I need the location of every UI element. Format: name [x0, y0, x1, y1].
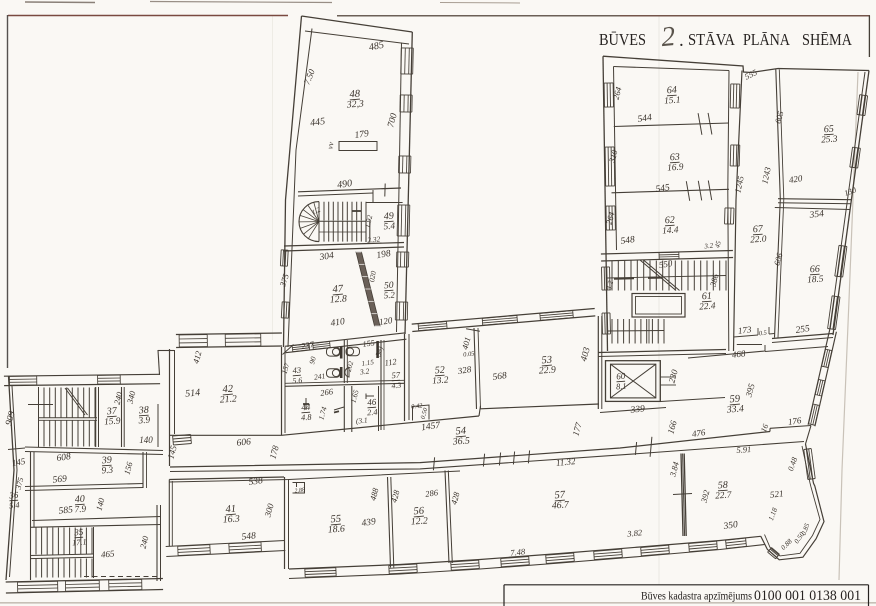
svg-text:5.2: 5.2	[383, 290, 395, 301]
svg-text:548: 548	[620, 235, 636, 247]
svg-text:514: 514	[185, 387, 201, 400]
svg-text:255: 255	[795, 324, 811, 336]
svg-text:.: .	[679, 30, 684, 51]
svg-text:112: 112	[384, 356, 398, 368]
svg-text:18.6: 18.6	[327, 523, 345, 535]
svg-text:420: 420	[788, 173, 803, 185]
svg-text:8.1: 8.1	[616, 382, 627, 392]
svg-text:64: 64	[666, 85, 677, 97]
svg-text:3.2: 3.2	[703, 242, 714, 251]
svg-text:43: 43	[292, 365, 301, 376]
svg-text:606: 606	[236, 437, 251, 448]
svg-text:15.9: 15.9	[104, 416, 121, 427]
svg-text:STĀVA: STĀVA	[688, 30, 735, 49]
svg-text:0.5: 0.5	[758, 330, 768, 338]
svg-text:44: 44	[301, 402, 311, 413]
svg-text:569: 569	[52, 474, 67, 485]
svg-text:3.2: 3.2	[358, 366, 370, 376]
svg-text:544: 544	[637, 113, 653, 125]
svg-text:476: 476	[691, 427, 706, 439]
svg-text:25.3: 25.3	[821, 134, 838, 145]
svg-text:22.0: 22.0	[750, 234, 767, 245]
svg-text:468: 468	[731, 348, 746, 360]
svg-text:35: 35	[73, 527, 84, 538]
svg-text:38: 38	[137, 405, 149, 417]
svg-text:BŪVES: BŪVES	[599, 30, 646, 49]
svg-text:2.32: 2.32	[367, 234, 381, 244]
svg-text:14.4: 14.4	[662, 225, 679, 236]
svg-text:13.2: 13.2	[432, 375, 449, 386]
svg-text:49: 49	[383, 211, 394, 223]
svg-text:46: 46	[367, 397, 377, 408]
svg-text:140: 140	[139, 435, 153, 445]
svg-text:568: 568	[492, 371, 508, 383]
svg-text:22.7: 22.7	[715, 490, 732, 501]
svg-text:37: 37	[105, 406, 118, 418]
svg-text:7.9: 7.9	[74, 505, 87, 516]
svg-text:445: 445	[309, 116, 325, 129]
svg-text:5.91: 5.91	[736, 444, 752, 455]
svg-text:3.9: 3.9	[137, 416, 151, 427]
svg-text:36: 36	[8, 490, 19, 501]
svg-text:12.2: 12.2	[410, 515, 428, 527]
svg-text:60: 60	[616, 371, 626, 382]
svg-text:46.7: 46.7	[551, 499, 570, 511]
svg-text:2: 2	[660, 21, 677, 53]
svg-text:176: 176	[787, 415, 802, 427]
svg-text:266: 266	[320, 386, 335, 398]
svg-text:52: 52	[434, 365, 445, 377]
svg-text:5.4: 5.4	[9, 501, 20, 511]
svg-text:439: 439	[361, 517, 377, 529]
svg-text:40: 40	[74, 494, 85, 506]
svg-text:5.6: 5.6	[292, 376, 303, 386]
svg-text:12.8: 12.8	[329, 293, 347, 305]
svg-text:490: 490	[336, 178, 352, 191]
svg-text:22.4: 22.4	[699, 301, 716, 312]
svg-text:0100 001 0138 001: 0100 001 0138 001	[754, 588, 861, 604]
svg-text:17.1: 17.1	[72, 538, 87, 548]
svg-text:67: 67	[752, 224, 764, 236]
svg-text:521: 521	[769, 488, 783, 499]
svg-text:63: 63	[669, 152, 680, 164]
svg-text:3.82: 3.82	[626, 527, 644, 539]
svg-text:465: 465	[100, 548, 115, 559]
svg-text:173: 173	[737, 324, 752, 336]
svg-text:16.9: 16.9	[667, 162, 684, 173]
svg-text:548: 548	[241, 531, 256, 542]
svg-text:545: 545	[655, 183, 671, 195]
svg-text:39: 39	[100, 455, 112, 467]
svg-text:21.2: 21.2	[219, 393, 237, 405]
svg-text:339: 339	[629, 404, 645, 416]
svg-text:120: 120	[378, 315, 393, 327]
svg-text:66: 66	[809, 264, 820, 276]
svg-text:62: 62	[664, 215, 675, 227]
svg-text:286: 286	[425, 487, 440, 499]
svg-text:241: 241	[313, 371, 325, 381]
svg-text:7.48: 7.48	[510, 546, 527, 558]
svg-text:SHĒMA: SHĒMA	[802, 30, 852, 49]
svg-text:350: 350	[722, 520, 739, 532]
svg-text:57: 57	[391, 370, 401, 381]
svg-text:4.8: 4.8	[301, 413, 313, 423]
svg-text:11.32: 11.32	[555, 456, 576, 468]
svg-text:550: 550	[658, 258, 673, 270]
svg-text:15.1: 15.1	[664, 95, 681, 106]
svg-text:33.4: 33.4	[725, 403, 744, 415]
svg-text:608: 608	[56, 452, 72, 464]
svg-text:9.3: 9.3	[101, 466, 114, 477]
svg-text:155: 155	[362, 338, 375, 349]
svg-text:0.05: 0.05	[463, 350, 476, 358]
svg-text:65: 65	[823, 124, 834, 136]
svg-text:32,3: 32,3	[345, 98, 364, 110]
svg-text:4.3: 4.3	[391, 381, 402, 391]
svg-text:PLĀNA: PLĀNA	[743, 30, 790, 49]
svg-text:2.4: 2.4	[367, 408, 378, 418]
svg-text:(3.1: (3.1	[355, 415, 368, 425]
svg-text:Būves kadastra apzīmējums: Būves kadastra apzīmējums	[641, 591, 752, 603]
svg-text:410: 410	[330, 317, 346, 329]
svg-text:61: 61	[701, 291, 712, 303]
svg-text:538: 538	[248, 476, 264, 488]
svg-text:354: 354	[808, 209, 824, 221]
svg-text:58: 58	[717, 480, 728, 492]
svg-text:585: 585	[58, 505, 73, 516]
svg-text:5.4: 5.4	[383, 222, 396, 233]
svg-text:22.9: 22.9	[538, 364, 556, 376]
svg-text:36.5: 36.5	[451, 435, 470, 447]
svg-text:304: 304	[318, 251, 335, 263]
svg-text:18.5: 18.5	[807, 274, 824, 285]
svg-text:179: 179	[354, 129, 370, 141]
svg-text:16.3: 16.3	[222, 513, 240, 525]
